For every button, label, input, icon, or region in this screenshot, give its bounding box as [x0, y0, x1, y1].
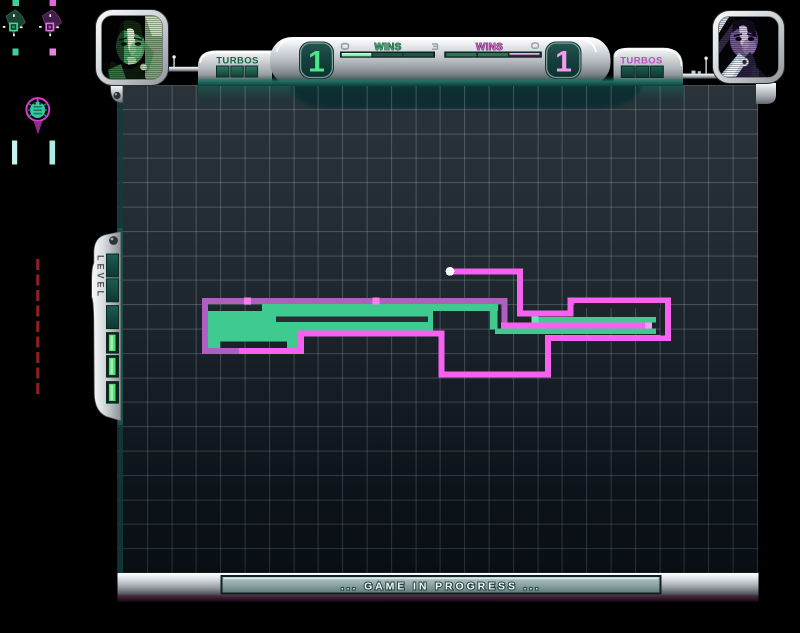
- svg-text:LEVEL: LEVEL: [96, 255, 106, 299]
- svg-text:1: 1: [555, 46, 572, 79]
- svg-text:1: 1: [308, 46, 325, 79]
- svg-text:... GAME IN PROGRESS ...: ... GAME IN PROGRESS ...: [341, 580, 541, 592]
- svg-text:TURBOS: TURBOS: [216, 55, 259, 66]
- svg-text:WINS: WINS: [476, 42, 503, 53]
- svg-text:TURBOS: TURBOS: [620, 56, 663, 67]
- svg-text:WINS: WINS: [374, 42, 401, 53]
